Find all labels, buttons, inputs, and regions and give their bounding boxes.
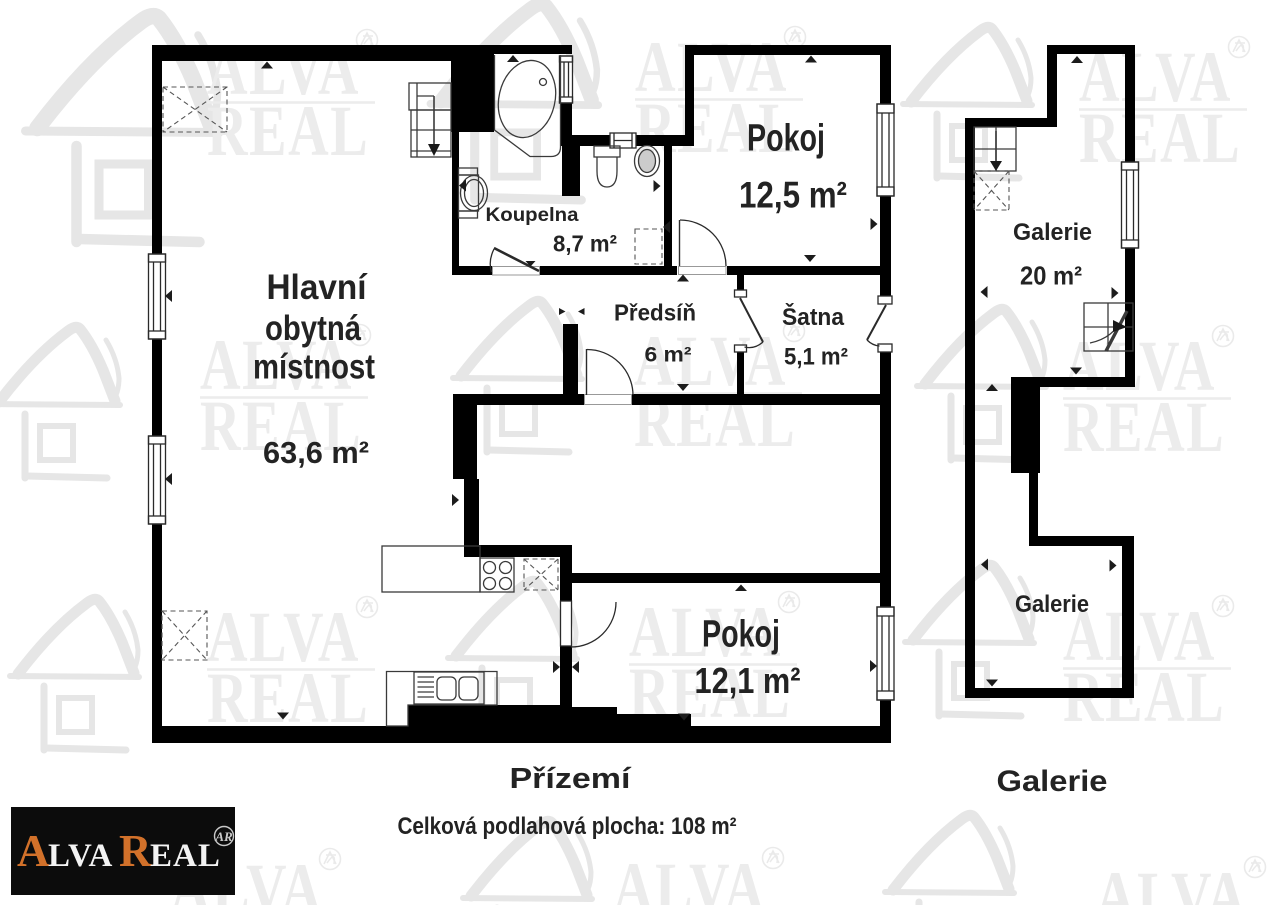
svg-text:5,1 m²: 5,1 m² — [784, 344, 848, 371]
svg-text:R: R — [119, 826, 152, 876]
svg-text:Celková podlahová plocha: 108: Celková podlahová plocha: 108 m² — [398, 813, 737, 840]
svg-text:obytná: obytná — [265, 309, 361, 348]
svg-text:Přízemí: Přízemí — [510, 763, 632, 795]
svg-text:6 m²: 6 m² — [645, 344, 692, 367]
svg-text:Galerie: Galerie — [997, 765, 1108, 798]
svg-text:AR: AR — [214, 829, 233, 844]
svg-text:12,1 m²: 12,1 m² — [695, 660, 801, 701]
svg-text:Pokoj: Pokoj — [747, 118, 825, 160]
svg-text:63,6 m²: 63,6 m² — [263, 435, 369, 470]
svg-text:Šatna: Šatna — [782, 303, 844, 331]
svg-text:Předsíň: Předsíň — [614, 300, 696, 326]
svg-text:A: A — [17, 826, 50, 876]
svg-text:Galerie: Galerie — [1013, 219, 1092, 246]
svg-text:20 m²: 20 m² — [1020, 261, 1082, 291]
svg-text:Koupelna: Koupelna — [486, 205, 579, 226]
svg-text:Hlavní: Hlavní — [267, 268, 368, 307]
svg-text:Pokoj: Pokoj — [702, 614, 780, 656]
svg-text:8,7 m²: 8,7 m² — [553, 231, 617, 257]
svg-text:EAL: EAL — [150, 838, 221, 874]
svg-text:LVA: LVA — [48, 838, 113, 874]
svg-text:12,5 m²: 12,5 m² — [739, 175, 847, 216]
svg-text:Galerie: Galerie — [1015, 591, 1089, 618]
svg-text:místnost: místnost — [253, 348, 375, 387]
